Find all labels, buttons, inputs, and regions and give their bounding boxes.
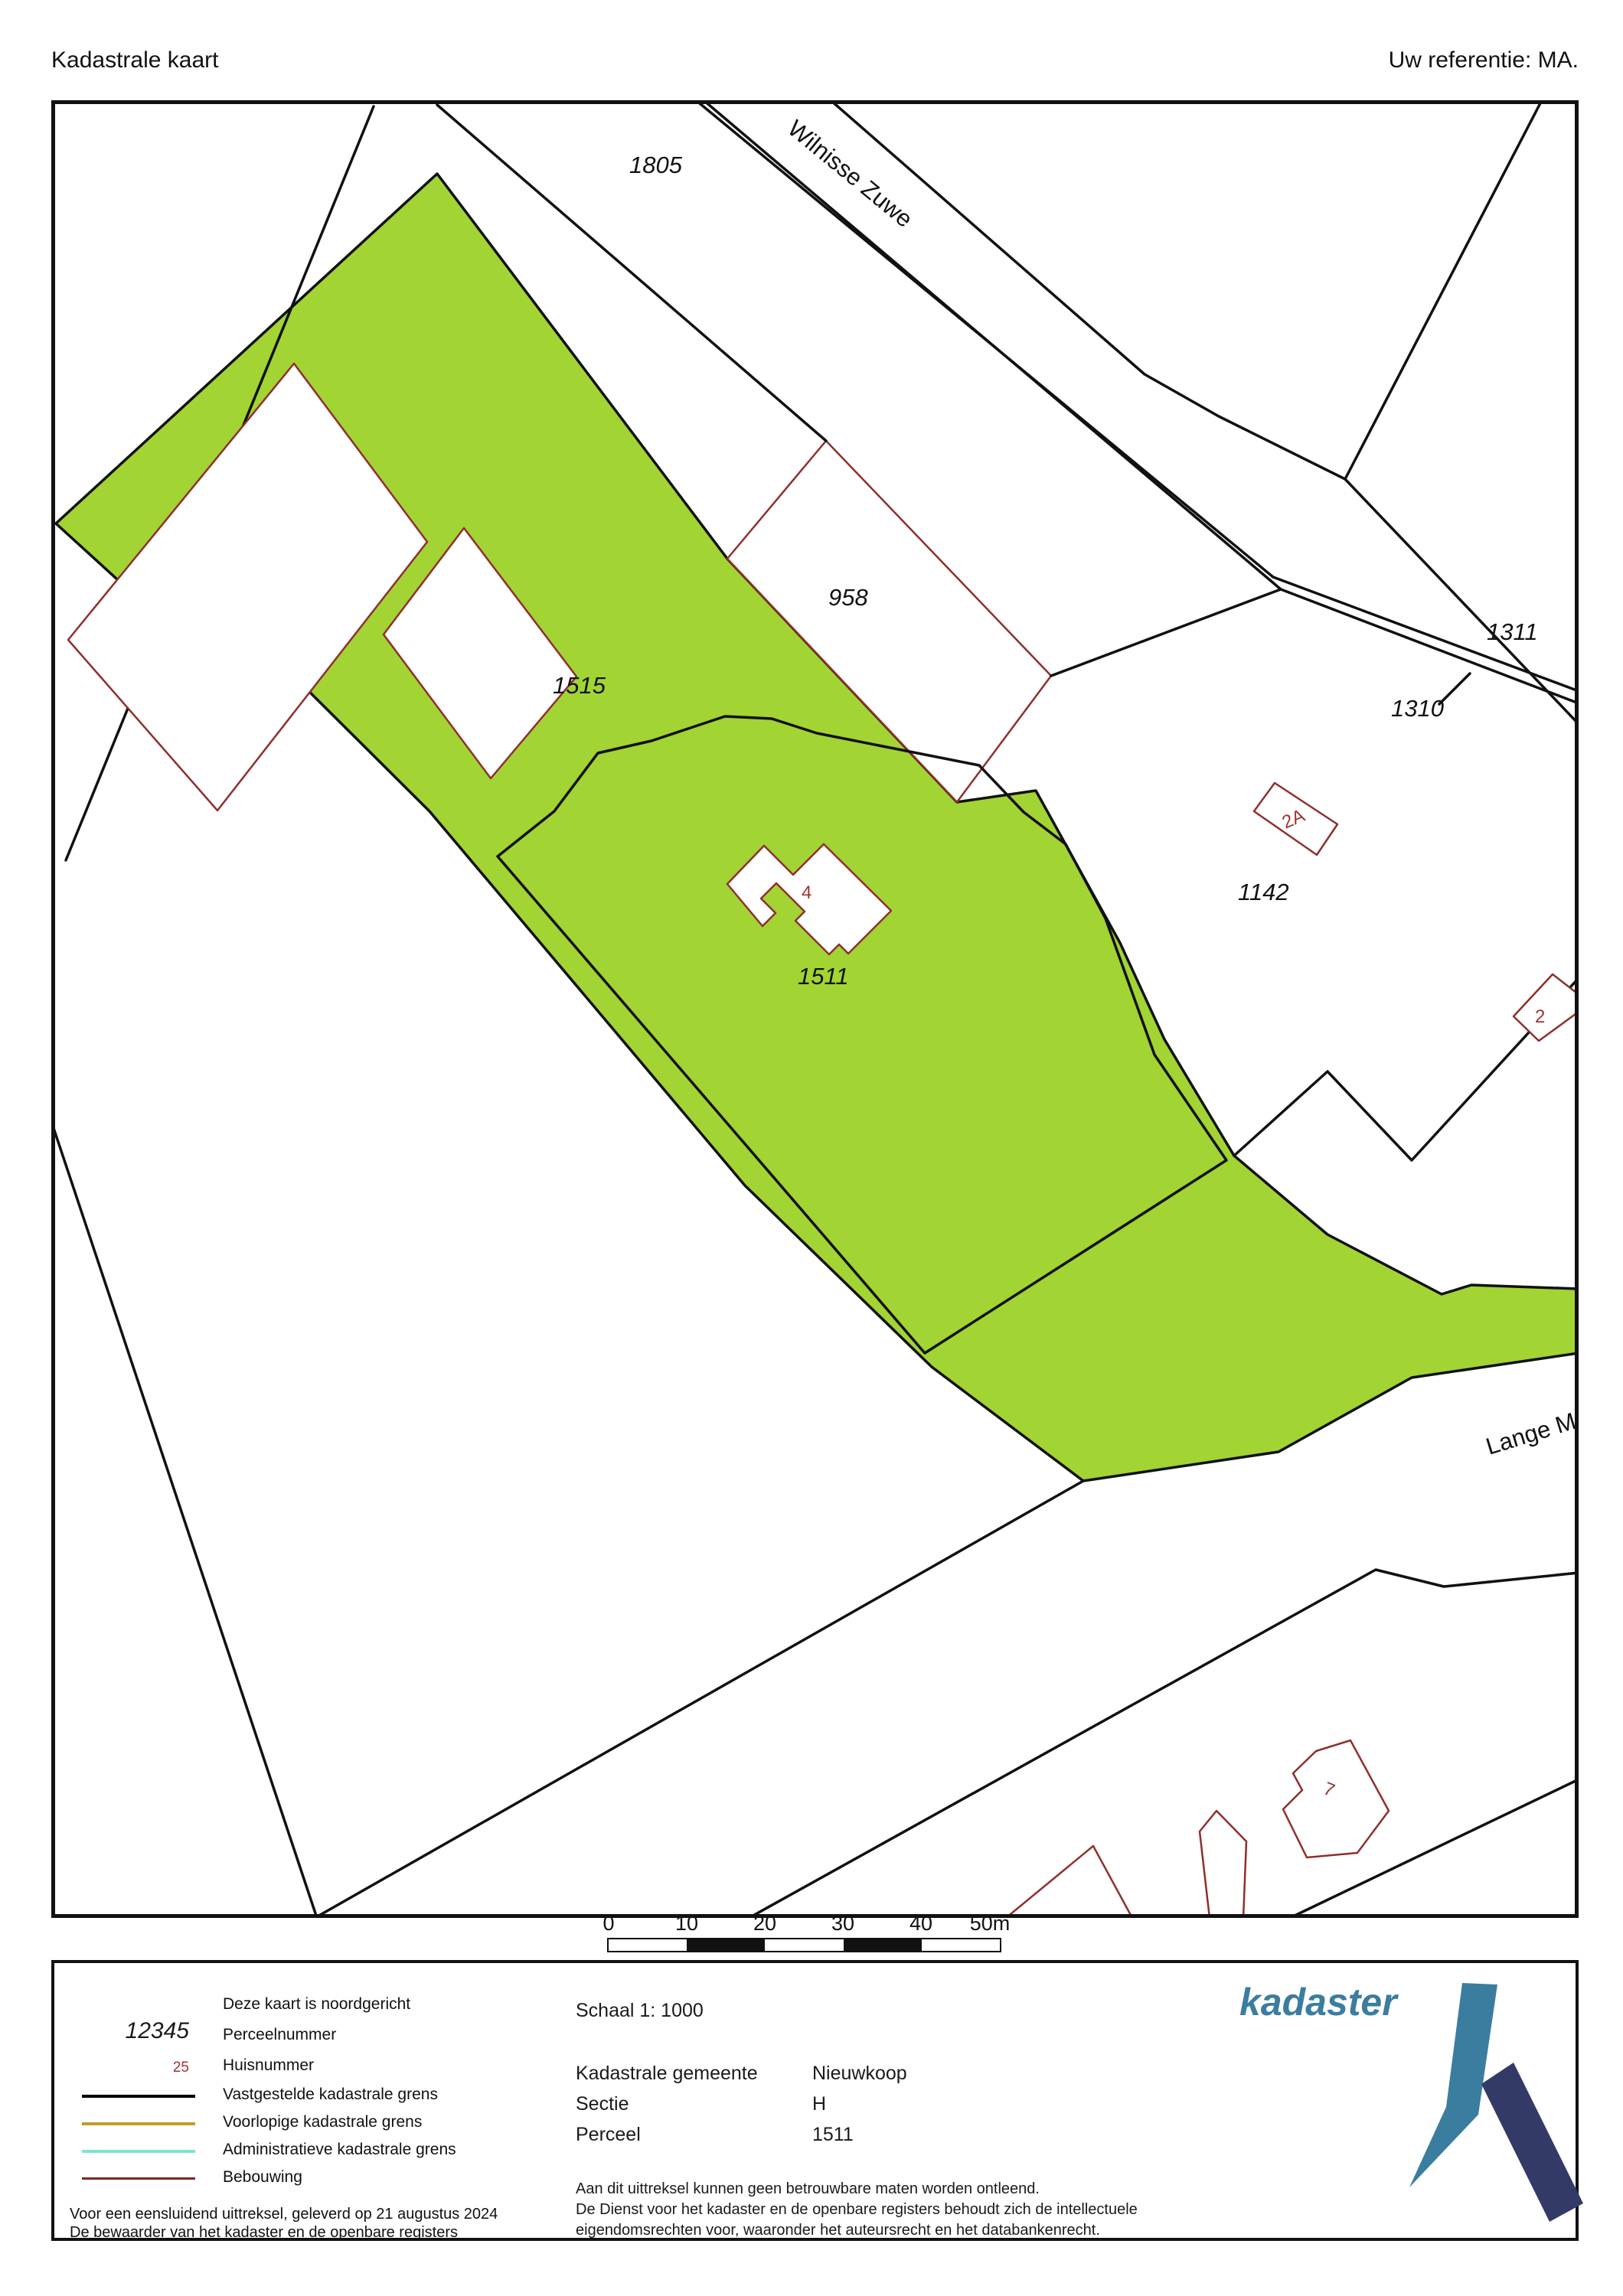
scale-tick-30: 30 — [831, 1912, 854, 1936]
scale-tick-0: 0 — [603, 1912, 614, 1936]
reference-text: Uw referentie: MA. — [1389, 47, 1579, 73]
road-lange-meentweg-east — [750, 1570, 1579, 1917]
scale-tick-20: 20 — [753, 1912, 776, 1936]
house-number-4: 4 — [802, 882, 811, 903]
building-house-2 — [1514, 974, 1579, 1041]
leader-1310 — [1439, 673, 1470, 704]
legend-symbol-huisnummer: 25 — [97, 2060, 189, 2076]
kadaster-logo-icon — [1356, 1977, 1593, 2229]
road-label-lange-m: Lange M — [1483, 1407, 1579, 1460]
legend-north-note: Deze kaart is noordgericht — [223, 1995, 410, 2014]
sectie-label: Sectie — [576, 2093, 629, 2115]
building-partial-v — [1006, 1846, 1132, 1918]
house-number-2: 2 — [1535, 1006, 1545, 1027]
legend-label-vastgesteld: Vastgestelde kadastrale grens — [223, 2086, 438, 2104]
legend-label-huisnummer: Huisnummer — [223, 2056, 314, 2075]
legend-panel: Deze kaart is noordgericht 12345 Perceel… — [51, 1960, 1579, 2241]
building-house-7 — [1283, 1740, 1389, 1857]
kadastrale-kaart-page: Kadastrale kaart Uw referentie: MA. — [0, 0, 1623, 2296]
perceel-label: Perceel — [576, 2124, 641, 2146]
scale-bar: 0 10 20 30 40 50m — [607, 1912, 999, 1952]
parcel-label-1515: 1515 — [553, 672, 606, 699]
legend-label-voorlopig: Voorlopige kadastrale grens — [223, 2113, 422, 2131]
scale-bar-segments — [607, 1938, 1001, 1952]
legend-line-vastgesteld — [82, 2095, 195, 2098]
perceel-value: 1511 — [812, 2124, 854, 2146]
road-corridor-north — [831, 100, 1345, 479]
legend-footer-line2: De bewaarder van het kadaster en de open… — [70, 2224, 458, 2242]
road-label-wilnisse-zuwe: Wilnisse Zuwe — [782, 115, 917, 233]
disclaimer-line2: De Dienst voor het kadaster en de openba… — [576, 2201, 1138, 2219]
parcel-label-1805: 1805 — [629, 152, 683, 178]
disclaimer-line1: Aan dit uittreksel kunnen geen betrouwba… — [576, 2180, 1040, 2198]
legend-label-administratief: Administratieve kadastrale grens — [223, 2141, 456, 2159]
parcel-label-1511: 1511 — [798, 963, 849, 990]
gemeente-label: Kadastrale gemeente — [576, 2063, 758, 2085]
page-title: Kadastrale kaart — [51, 47, 218, 73]
parcel-label-1142: 1142 — [1238, 879, 1289, 905]
sectie-value: H — [812, 2093, 826, 2115]
scale-tick-10: 10 — [675, 1912, 698, 1936]
parcel-label-1310: 1310 — [1391, 695, 1444, 722]
legend-label-bebouwing: Bebouwing — [223, 2168, 302, 2187]
parcel-label-1311: 1311 — [1487, 618, 1538, 645]
boundary-1142-north — [1051, 589, 1281, 676]
boundary-bottomleft-1 — [51, 1121, 317, 1918]
boundary-topright-to-junction — [1345, 100, 1542, 479]
highlighted-parcel-1511 — [56, 174, 1579, 1481]
scale-tick-50m: 50m — [970, 1912, 1011, 1936]
legend-label-perceelnummer: Perceelnummer — [223, 2026, 336, 2044]
legend-symbol-perceelnummer: 12345 — [97, 2018, 189, 2044]
boundary-junction-to-right — [1345, 479, 1579, 724]
gemeente-value: Nieuwkoop — [812, 2063, 907, 2085]
legend-footer-line1: Voor een eensluidend uittreksel, gelever… — [70, 2206, 498, 2223]
building-partial-narrow — [1200, 1811, 1246, 1918]
cadastral-map: 1805 Wilnisse Zuwe 958 1515 1311 1310 11… — [51, 100, 1579, 1918]
scale-tick-40: 40 — [909, 1912, 932, 1936]
legend-line-administratief — [82, 2150, 195, 2153]
parcel-label-958: 958 — [828, 584, 868, 611]
road-lange-meentweg-west — [316, 1481, 1083, 1917]
legend-line-bebouwing — [82, 2177, 195, 2180]
disclaimer-line3: eigendomsrechten voor, waaronder het aut… — [576, 2222, 1100, 2239]
schaal-text: Schaal 1: 1000 — [576, 2000, 704, 2022]
legend-line-voorlopig — [82, 2122, 195, 2125]
